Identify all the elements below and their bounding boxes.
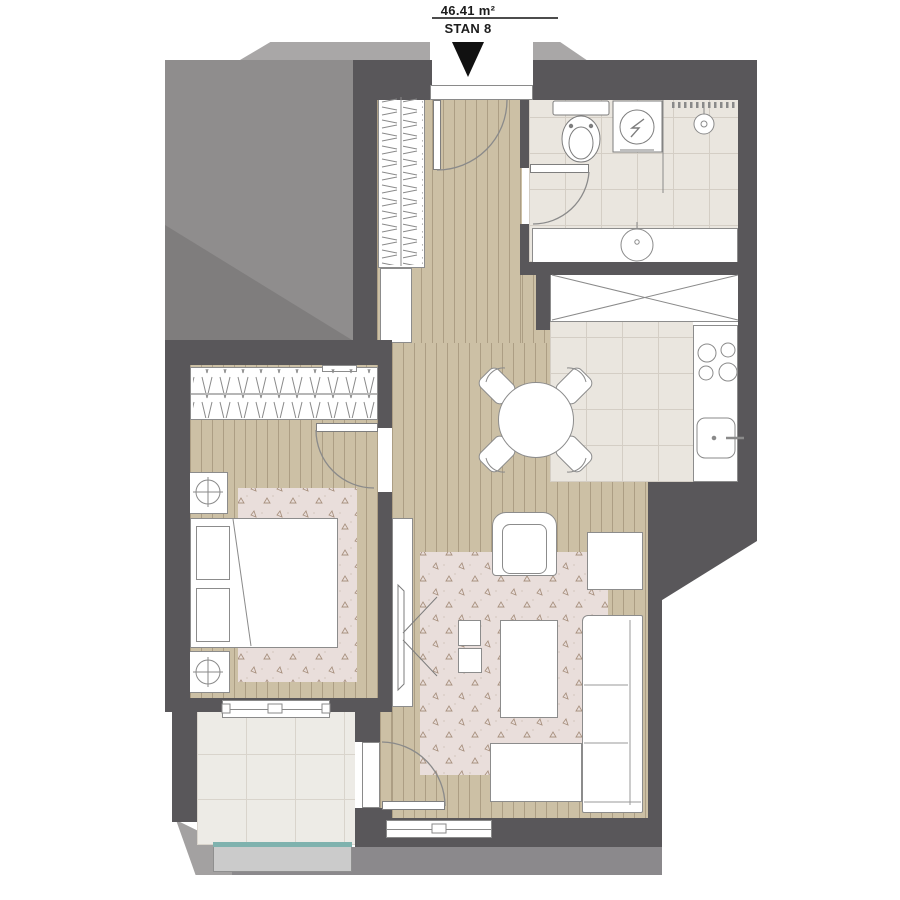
bed-pillow-2 [196,588,230,642]
bed-pillow-1 [196,526,230,580]
wall-balcony-left [172,712,197,822]
side-table [587,532,643,590]
pouf-1 [458,620,481,646]
balcony-door-threshold [362,742,380,808]
wardrobe-shelf [322,365,357,372]
kitchen-counter [693,325,738,482]
sofa-body [582,615,643,813]
wall-right-outer [738,60,757,492]
hall-cabinet [380,268,412,343]
bedroom-door-leaf [316,423,378,432]
wall-bath-left-b [520,224,529,264]
wall-bedroom-left [165,340,190,712]
nightstand-bottom [187,651,230,693]
area-label: 46.41 m² [393,3,543,18]
entrance-door-leaf [433,100,441,170]
coffee-table [500,620,558,718]
entrance-gap [432,60,533,85]
wall-top [353,60,757,100]
wall-bedroom-right-a [378,343,392,428]
wall-bath-bottom [520,262,740,275]
balcony-door-leaf [382,801,445,810]
wall-balcony-stub-top [355,712,380,742]
mass-right-step [648,482,757,600]
bevel-top-left [240,42,430,60]
balcony-floor [197,712,355,845]
armchair-seat [502,524,547,574]
living-window [386,820,492,838]
nightstand-top [188,472,228,514]
bath-vanity [532,228,738,264]
entrance-threshold [430,85,533,100]
tv-console [392,518,413,707]
bedroom-window [222,700,330,718]
balustrade-rail [213,842,352,847]
bedroom-wardrobe [190,367,378,420]
hall-closet [378,95,425,268]
unit-label: STAN 8 [393,21,543,36]
wall-bedroom-right-b [378,492,392,712]
tall-cabinet [550,273,740,322]
wall-living-right [648,482,662,847]
pouf-2 [458,648,482,673]
wall-hall-left [353,60,377,343]
balustrade-glass [213,846,352,872]
dining-table [498,382,574,458]
wall-bath-left-a [520,100,529,168]
sofa-chaise [490,743,582,802]
floor-plan: 46.41 m² STAN 8 [0,0,900,900]
wall-kitchen-stub [536,273,550,330]
bathroom-door-leaf [530,164,589,173]
wall-bedroom-top [165,340,392,365]
